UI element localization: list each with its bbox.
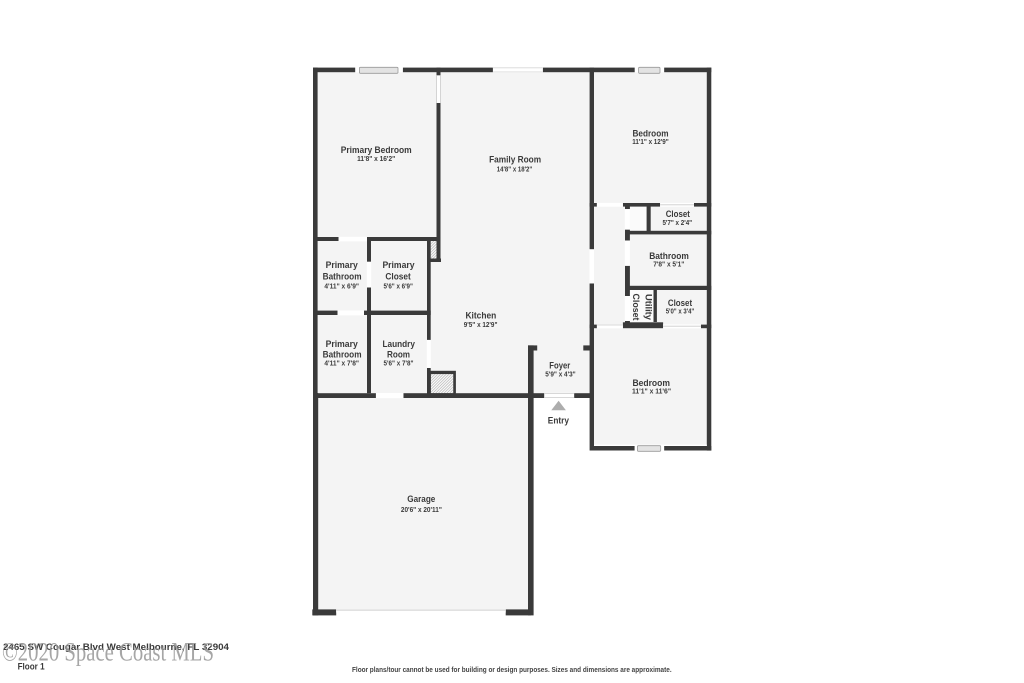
svg-text:Primary: Primary — [326, 339, 359, 350]
svg-text:9'5" x 12'9": 9'5" x 12'9" — [464, 320, 498, 329]
svg-text:5'7" x 2'4": 5'7" x 2'4" — [662, 218, 692, 227]
svg-text:5'6" x 7'8": 5'6" x 7'8" — [384, 358, 414, 367]
svg-text:Garage: Garage — [407, 494, 435, 505]
svg-text:Primary: Primary — [382, 260, 415, 271]
svg-text:Floor 1: Floor 1 — [18, 661, 45, 671]
svg-text:4'11" x 7'8": 4'11" x 7'8" — [324, 358, 359, 367]
svg-text:5'9" x 4'3": 5'9" x 4'3" — [545, 370, 576, 379]
svg-text:14'8" x 18'2": 14'8" x 18'2" — [497, 164, 533, 173]
svg-text:11'1" x 12'9": 11'1" x 12'9" — [632, 137, 669, 146]
svg-text:Laundry: Laundry — [383, 339, 416, 350]
svg-text:Utility: Utility — [642, 294, 653, 321]
svg-text:7'8" x 5'1": 7'8" x 5'1" — [653, 260, 685, 269]
svg-text:Floor plans/tour cannot be use: Floor plans/tour cannot be used for buil… — [352, 665, 672, 674]
svg-text:5'0" x 3'4": 5'0" x 3'4" — [666, 306, 695, 315]
svg-text:Closet: Closet — [630, 294, 641, 322]
svg-text:20'6" x 20'11": 20'6" x 20'11" — [401, 505, 442, 514]
svg-text:11'8" x 16'2": 11'8" x 16'2" — [357, 154, 396, 163]
svg-text:5'6" x 6'9": 5'6" x 6'9" — [383, 281, 413, 290]
svg-text:Primary: Primary — [326, 260, 359, 271]
svg-text:4'11" x 6'9": 4'11" x 6'9" — [324, 281, 359, 290]
svg-text:11'1" x 11'6": 11'1" x 11'6" — [632, 387, 672, 396]
svg-text:Entry: Entry — [548, 416, 570, 427]
